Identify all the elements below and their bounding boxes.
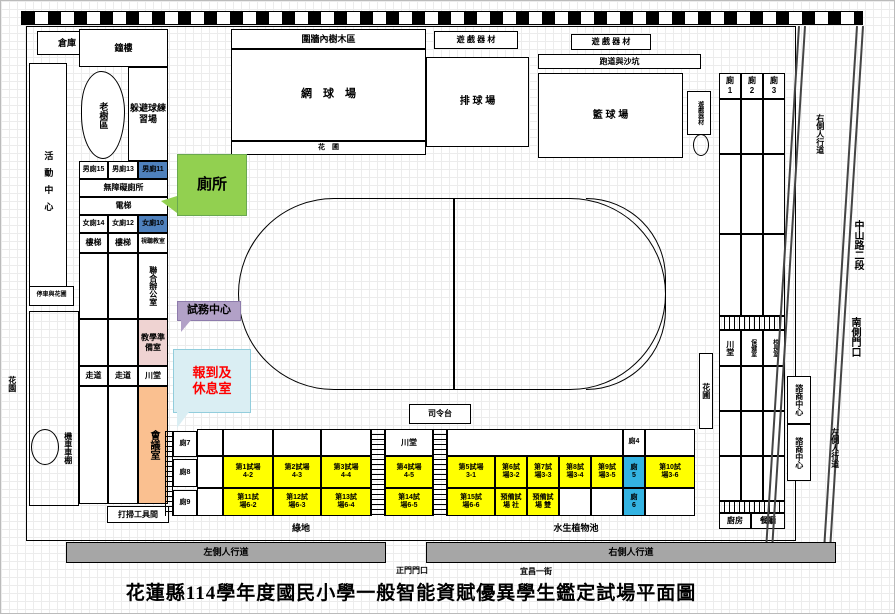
building-cell bbox=[591, 488, 623, 516]
building-cell bbox=[108, 319, 138, 366]
exam-room: 第15試 場6-6 bbox=[447, 488, 495, 516]
building-cell bbox=[741, 366, 763, 411]
exam-room: 第7試 場3-3 bbox=[527, 456, 559, 488]
play-equipment-a: 遊 戲 器 材 bbox=[434, 31, 518, 49]
stage-platform: 司令台 bbox=[409, 404, 471, 424]
track-and-sandpit: 跑道與沙坑 bbox=[538, 54, 701, 69]
tree-ellipse bbox=[31, 429, 59, 465]
exam-room: 第9試 場3-5 bbox=[591, 456, 623, 488]
building-cell bbox=[645, 429, 695, 456]
volleyball-court: 排 球 場 bbox=[426, 57, 529, 147]
building-cell bbox=[559, 488, 591, 516]
exam-room: 第11試 場6-2 bbox=[223, 488, 273, 516]
health-room: 保健室 bbox=[741, 330, 763, 366]
building-cell bbox=[645, 488, 695, 516]
principal-room: 校長室 bbox=[763, 330, 785, 366]
building-cell bbox=[719, 154, 741, 234]
play-equipment-b: 遊 戲 器 材 bbox=[571, 34, 651, 50]
toilet-callout: 廁所 bbox=[177, 154, 247, 216]
checkin-rest-callout-tail bbox=[177, 412, 189, 428]
toilet-8: 廁8 bbox=[173, 459, 197, 487]
flower-bed-right: 花圃 bbox=[699, 353, 713, 429]
building-cell bbox=[719, 456, 741, 501]
building-cell bbox=[79, 253, 108, 319]
corridor-hatch bbox=[433, 429, 447, 516]
main-gate-label: 正門門口 bbox=[383, 565, 441, 577]
building-cell bbox=[741, 99, 763, 154]
checkered-wall-top bbox=[21, 11, 863, 25]
building-cell bbox=[223, 429, 273, 456]
exam-room: 第14試 場6-5 bbox=[385, 488, 433, 516]
track-center-line bbox=[453, 199, 455, 389]
building-cell bbox=[321, 429, 371, 456]
stairs-b: 樓梯 bbox=[108, 233, 138, 253]
exam-room: 第10試 場3-6 bbox=[645, 456, 695, 488]
corridor-hatch bbox=[719, 316, 785, 330]
toilet-3: 廁 3 bbox=[763, 73, 785, 99]
womens-toilet-14: 女廁14 bbox=[79, 215, 108, 233]
accessible-toilet: 無障礙廁所 bbox=[79, 179, 168, 197]
building-cell bbox=[197, 429, 223, 456]
toilet-2: 廁 2 bbox=[741, 73, 763, 99]
building-cell bbox=[79, 386, 108, 504]
exam-room: 第1試場 4-2 bbox=[223, 456, 273, 488]
building-cell bbox=[79, 319, 108, 366]
building-cell bbox=[108, 253, 138, 319]
counseling-center: 諮商中心 bbox=[787, 424, 811, 481]
toilet-5: 廁 5 bbox=[623, 456, 645, 488]
activity-center: 活動中心 bbox=[29, 63, 67, 306]
zhongshan-road-label: 中山路二段 bbox=[847, 197, 867, 292]
parking-and-flowerbed: 停車與花圃 bbox=[29, 286, 74, 306]
building-cell bbox=[108, 386, 138, 504]
exam-room: 第8試 場3-4 bbox=[559, 456, 591, 488]
basketball-court: 籃 球 場 bbox=[538, 73, 683, 158]
green-space-label: 綠地 bbox=[271, 521, 331, 535]
mens-toilet-15: 男廁15 bbox=[79, 161, 108, 179]
flower-bed-strip: 花 圃 bbox=[231, 141, 426, 155]
exam-room: 第12試 場6-3 bbox=[273, 488, 321, 516]
building-cell bbox=[197, 456, 223, 488]
building-cell bbox=[447, 429, 623, 456]
building-cell bbox=[741, 234, 763, 316]
yichang-street-label: 宜昌一街 bbox=[506, 566, 566, 578]
dodgeball-practice-court: 躲避球練習場 bbox=[128, 67, 168, 161]
building-cell bbox=[719, 99, 741, 154]
toilet-1: 廁 1 bbox=[719, 73, 741, 99]
south-gate-label: 南側門口 bbox=[844, 301, 864, 373]
tennis-court: 網 球 場 bbox=[231, 49, 426, 141]
building-cell bbox=[719, 234, 741, 316]
checkin-rest-callout: 報到及 休息室 bbox=[173, 349, 251, 413]
map-title: 花蓮縣114學年度國民小學一般智能資賦優異學生鑑定試場平面圖 bbox=[61, 580, 761, 608]
reserve-exam-room: 預備試 場 雙 bbox=[527, 488, 559, 516]
aquatic-pond-label: 水生植物池 bbox=[511, 521, 641, 535]
building-cell bbox=[741, 154, 763, 234]
right-sidewalk: 右側人行道 bbox=[426, 542, 836, 563]
left-sidewalk: 左側人行道 bbox=[66, 542, 386, 563]
campus-map: 活動中心 倉庫 鐘樓 老樹區 躲避球練習場 男廁15 男廁13 男廁11 無障礙… bbox=[0, 0, 895, 614]
play-equipment-c: 遊戲器材 bbox=[687, 91, 711, 135]
exam-room: 第5試場 3-1 bbox=[447, 456, 495, 488]
cleaning-tools-room: 打掃工具間 bbox=[107, 506, 169, 523]
meeting-room: 會議室 bbox=[138, 386, 168, 504]
building-cell bbox=[741, 411, 763, 456]
toilet-7: 廁7 bbox=[173, 431, 197, 457]
corridor-hatch bbox=[371, 429, 385, 516]
building-cell bbox=[741, 456, 763, 501]
bell-building: 鐘樓 bbox=[79, 29, 168, 67]
mens-toilet-13: 男廁13 bbox=[108, 161, 138, 179]
reserve-exam-room: 預備試 場 社 bbox=[495, 488, 527, 516]
womens-toilet-12: 女廁12 bbox=[108, 215, 138, 233]
exam-office-callout: 試務中心 bbox=[177, 301, 241, 321]
toilet-4: 廁4 bbox=[623, 429, 645, 456]
toilet-6: 廁 6 bbox=[623, 488, 645, 516]
toilet-9: 廁9 bbox=[173, 490, 197, 516]
exam-room: 第6試 場3-2 bbox=[495, 456, 527, 488]
hall-left: 川堂 bbox=[138, 366, 168, 386]
corridor-a: 走道 bbox=[79, 366, 108, 386]
left-sidewalk-road-label: 左側人行道 bbox=[826, 403, 844, 493]
exam-room: 第3試場 4-4 bbox=[321, 456, 371, 488]
scooter-shed: 機車車棚 bbox=[59, 413, 77, 483]
garden-left: 花園 bbox=[4, 367, 20, 401]
exam-room: 第13試 場6-4 bbox=[321, 488, 371, 516]
right-sidewalk-label: 右側人行道 bbox=[811, 89, 829, 179]
toilet-callout-tail bbox=[161, 196, 177, 213]
womens-toilet-10: 女廁10 bbox=[138, 215, 168, 233]
hall-grid: 川堂 bbox=[385, 429, 433, 456]
exam-office-callout-tail bbox=[181, 320, 191, 332]
building-cell bbox=[719, 411, 741, 456]
counseling-center: 諮商中心 bbox=[787, 376, 811, 424]
elevator: 電梯 bbox=[79, 197, 168, 215]
building-cell bbox=[763, 154, 785, 234]
mens-toilet-11: 男廁11 bbox=[138, 161, 168, 179]
tree-ellipse bbox=[693, 134, 709, 156]
hall-right: 川堂 bbox=[719, 330, 741, 366]
building-cell bbox=[197, 488, 223, 516]
kitchen: 廚房 bbox=[719, 513, 751, 529]
walled-tree-area: 圍牆內樹木區 bbox=[231, 29, 426, 49]
building-cell bbox=[273, 429, 321, 456]
building-cell bbox=[763, 99, 785, 154]
exam-room: 第4試場 4-5 bbox=[385, 456, 433, 488]
joint-office: 聯合辦公室 bbox=[138, 253, 168, 319]
stairs-a: 樓梯 bbox=[79, 233, 108, 253]
exam-room: 第2試場 4-3 bbox=[273, 456, 321, 488]
av-room: 視聽教室 bbox=[138, 233, 168, 253]
building-cell bbox=[719, 366, 741, 411]
teaching-prep-room: 教學準備室 bbox=[138, 319, 168, 366]
corridor-hatch bbox=[165, 431, 173, 516]
corridor-b: 走道 bbox=[108, 366, 138, 386]
